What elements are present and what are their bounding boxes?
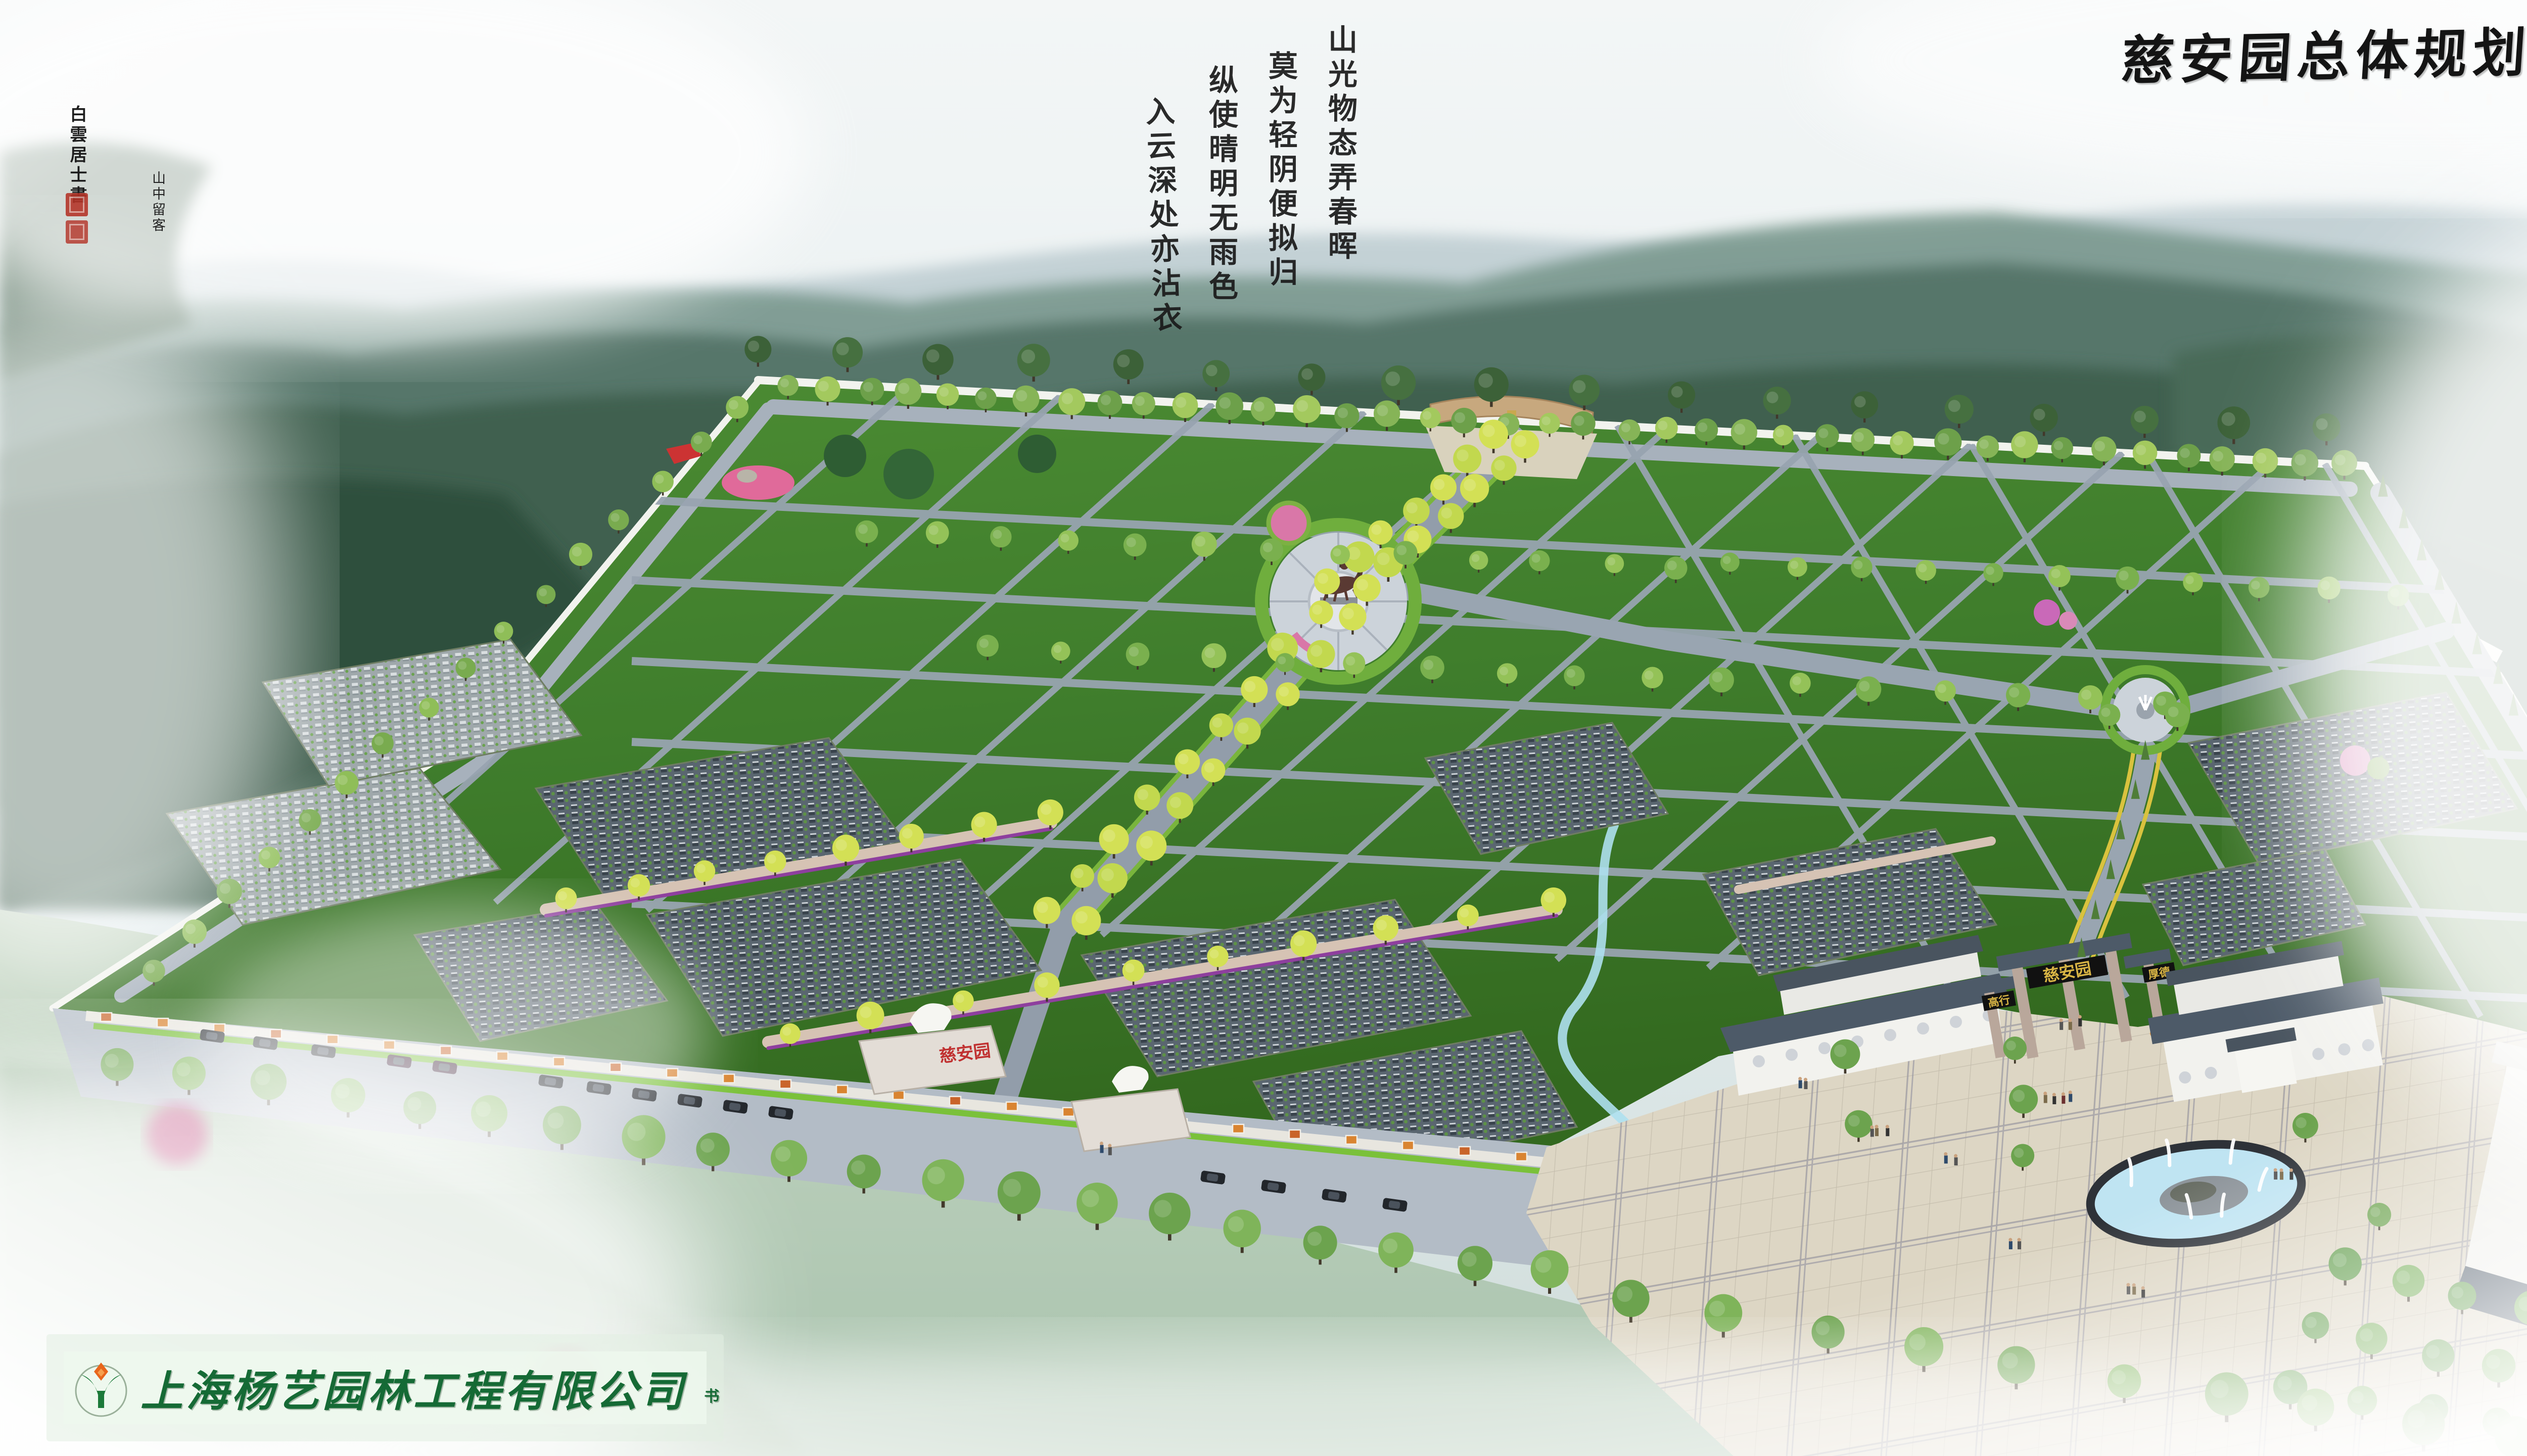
master-plan-rendering: 慈安园 <box>0 0 2527 1456</box>
edge-vignette <box>0 0 2527 1456</box>
site-plan-scene: 慈安园 <box>0 0 2527 1456</box>
